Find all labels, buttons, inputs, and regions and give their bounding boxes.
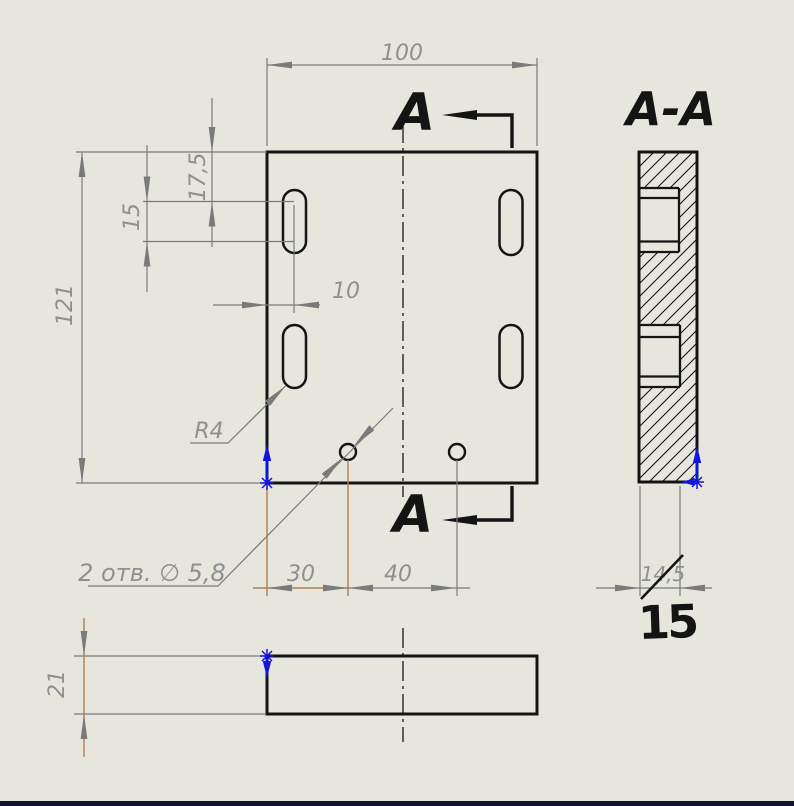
dim-lines [143, 98, 294, 247]
cut-arrow-icon [442, 515, 477, 525]
section-cut-line-top[interactable]: A [391, 83, 512, 148]
section-slot-bottom-edges[interactable] [639, 325, 680, 387]
axis-arrow-icon [263, 444, 271, 461]
dim-text: 10 [332, 279, 360, 304]
hole-left[interactable] [340, 444, 356, 460]
section-view-title: A-A [623, 82, 716, 136]
origin-marker-front[interactable] [260, 444, 274, 490]
leader-slot-radius[interactable]: R4 [190, 386, 286, 445]
dim-slot-top-offset[interactable]: 17,5 [143, 98, 294, 247]
dim-lines [143, 145, 294, 292]
dim-text: 17,5 [186, 153, 211, 202]
slot-bottom-right[interactable] [500, 325, 523, 388]
window-edge [0, 801, 794, 806]
bottom-view[interactable] [267, 628, 537, 742]
section-letter-bottom: A [389, 485, 433, 545]
drawing-canvas[interactable]: A A A-A 100 121 17,5 15 10 R4 [0, 0, 794, 806]
bottom-view-outline[interactable] [267, 656, 537, 714]
origin-marker-bottom-view[interactable] [260, 649, 274, 678]
hole-right[interactable] [449, 444, 465, 460]
cut-arrow-icon [442, 110, 477, 120]
cut-line [476, 115, 512, 148]
front-view[interactable] [267, 123, 537, 497]
dim-text: 21 [45, 670, 70, 698]
dim-text: 40 [384, 562, 412, 587]
dim-slot-edge-offset[interactable]: 10 [213, 205, 360, 313]
dim-plate-thickness[interactable]: 21 [45, 618, 265, 757]
section-view[interactable] [639, 152, 697, 482]
cad-viewport[interactable]: A A A-A 100 121 17,5 15 10 R4 [0, 0, 794, 806]
origin-asterisk-icon [690, 475, 704, 489]
origin-asterisk-icon [260, 649, 274, 663]
leader-text: R4 [194, 419, 223, 444]
dim-text: 15 [120, 203, 145, 231]
section-cut-line-bottom[interactable]: A [389, 485, 512, 545]
slot-top-right[interactable] [500, 190, 523, 255]
slot-bottom-left[interactable] [283, 325, 306, 388]
dim-pocket-depth[interactable]: 14,5 15 [596, 486, 712, 650]
leader-text: 2 отв. ∅ 5,8 [78, 559, 226, 587]
ext-lines [74, 656, 265, 714]
dim-text: 100 [381, 41, 423, 66]
dim-text: 30 [287, 562, 315, 587]
section-hatching [639, 152, 697, 482]
cut-line [476, 486, 512, 520]
axis-arrow-icon [263, 661, 271, 678]
dim-text: 121 [53, 284, 78, 326]
dim-text-marked: 15 [637, 594, 697, 650]
section-slot-top-edges[interactable] [639, 188, 679, 252]
section-letter-top: A [391, 83, 435, 143]
origin-asterisk-icon [260, 476, 274, 490]
dim-text-old: 14,5 [641, 562, 686, 586]
plate-outline[interactable] [267, 152, 537, 483]
